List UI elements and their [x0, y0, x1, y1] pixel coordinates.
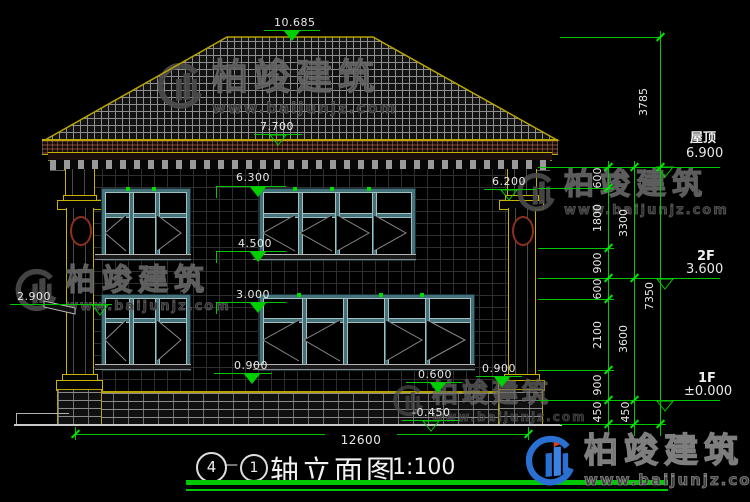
dim-450: 450 — [591, 390, 605, 434]
window-1f-center — [260, 295, 474, 370]
dim-3300: 3300 — [617, 201, 631, 245]
left-pilaster-oval-ornament — [70, 216, 92, 246]
watermark-url: www.baijunjz.com — [564, 203, 729, 218]
left-pilaster-neck — [65, 169, 95, 196]
watermark-brand: 柏竣建筑 — [564, 170, 729, 200]
extension-line — [560, 37, 660, 38]
level-line — [216, 251, 286, 252]
dimension-chain-middle — [634, 161, 635, 436]
level-capital-right: 6.200 — [492, 175, 526, 188]
ground-line — [14, 424, 562, 426]
dim-2100: 2100 — [591, 313, 605, 357]
window-mullion — [343, 298, 348, 367]
level-eave: 7.700 — [260, 120, 294, 133]
window-mullion — [155, 192, 160, 257]
baijun-logo-icon — [156, 60, 206, 116]
watermark-url: www.baijunjz.com — [432, 410, 587, 424]
window-transom-bar — [105, 318, 187, 323]
dim-600: 600 — [591, 156, 605, 200]
level-win1-sill: 0.900 — [234, 359, 268, 372]
window-transom-bar — [105, 213, 187, 218]
snap-dot — [293, 187, 297, 191]
level-stem — [216, 302, 217, 314]
level-plinth-top: 0.600 — [418, 368, 452, 381]
axis-bubble-end: 1 — [240, 454, 268, 482]
level-pedestal-top: 0.900 — [482, 362, 516, 375]
roof-value: 6.900 — [686, 146, 723, 161]
axis-dash: — — [224, 457, 238, 473]
level-line — [214, 373, 272, 374]
dim-450b: 450 — [619, 390, 633, 434]
axis-bubble-start: 4 — [196, 452, 227, 483]
snap-dot — [420, 293, 424, 297]
window-2f-left — [102, 189, 190, 260]
watermark-brand: 柏竣建筑 — [584, 434, 750, 468]
snap-dot — [367, 187, 371, 191]
watermark-logo-corner: 柏竣建筑 www.baijunjz.com — [524, 434, 750, 492]
watermark-url: www.baijunjz.com — [66, 299, 231, 314]
level-win2-sill: 4.500 — [238, 237, 272, 250]
dim-total-width: 12600 — [341, 433, 382, 447]
level-peak: 10.685 — [274, 16, 316, 29]
watermark-brand: 柏竣建筑 — [432, 381, 587, 407]
level-win2-head: 6.300 — [236, 171, 270, 184]
dim-7350: 7350 — [643, 274, 657, 318]
level-line — [254, 134, 302, 135]
left-step-edge — [16, 413, 69, 414]
floor1-value: ±0.000 — [684, 384, 732, 399]
snap-dot — [152, 187, 156, 191]
level-line — [264, 30, 320, 31]
dim-3600: 3600 — [617, 317, 631, 361]
level-line — [402, 420, 460, 421]
window-mullion — [335, 192, 340, 257]
extension-line — [538, 167, 720, 168]
left-pilaster-pedestal — [57, 389, 102, 426]
watermark-brand: 柏竣建筑 — [66, 266, 231, 296]
extension-line — [560, 424, 666, 425]
dim-1800: 1800 — [591, 196, 605, 240]
snap-dot — [379, 293, 383, 297]
dimension-line-width — [75, 434, 528, 435]
dimension-chain-outer — [660, 31, 661, 436]
level-stem — [216, 186, 217, 198]
elevation-drawing-canvas: 柏竣建筑 www.baijunjz.com 柏竣建筑 www.baijunjz.… — [0, 0, 750, 502]
window-mullion — [129, 192, 134, 257]
window-mullion — [384, 298, 389, 367]
dim-3785: 3785 — [637, 80, 651, 124]
left-step-riser — [16, 413, 17, 424]
level-stem — [216, 251, 217, 263]
level-line — [476, 376, 522, 377]
level-line — [10, 304, 112, 305]
snap-dot — [330, 187, 334, 191]
roof-label: 屋顶 — [690, 127, 716, 146]
watermark-url: www.baijunjz.com — [212, 99, 397, 117]
level-win1-head: 3.000 — [236, 288, 270, 301]
window-mullion — [372, 192, 377, 257]
dim-600b: 600 — [591, 267, 605, 311]
window-mullion — [298, 192, 303, 257]
level-line — [406, 382, 462, 383]
baijun-logo-icon — [524, 434, 578, 492]
level-line — [216, 186, 286, 187]
level-ground: -0.450 — [412, 406, 450, 419]
level-line — [484, 189, 536, 190]
window-mullion — [302, 298, 307, 367]
floor2-value: 3.600 — [686, 262, 723, 277]
snap-dot — [297, 293, 301, 297]
extension-line — [538, 278, 720, 279]
window-2f-center — [260, 189, 415, 260]
window-sill — [253, 254, 416, 260]
watermark-brand: 柏竣建筑 — [212, 60, 397, 96]
window-sill — [95, 254, 191, 260]
snap-dot — [126, 187, 130, 191]
watermark-roof: 柏竣建筑 www.baijunjz.com — [156, 60, 397, 117]
window-mullion — [425, 298, 430, 367]
window-sill — [95, 364, 191, 370]
drawing-scale: 1:100 — [392, 455, 455, 480]
window-transom-bar — [263, 318, 471, 323]
level-ledge-left: 2.900 — [17, 290, 51, 303]
right-pilaster-oval-ornament — [512, 216, 534, 246]
level-line — [216, 302, 286, 303]
watermark-url: www.baijunjz.com — [584, 471, 750, 489]
